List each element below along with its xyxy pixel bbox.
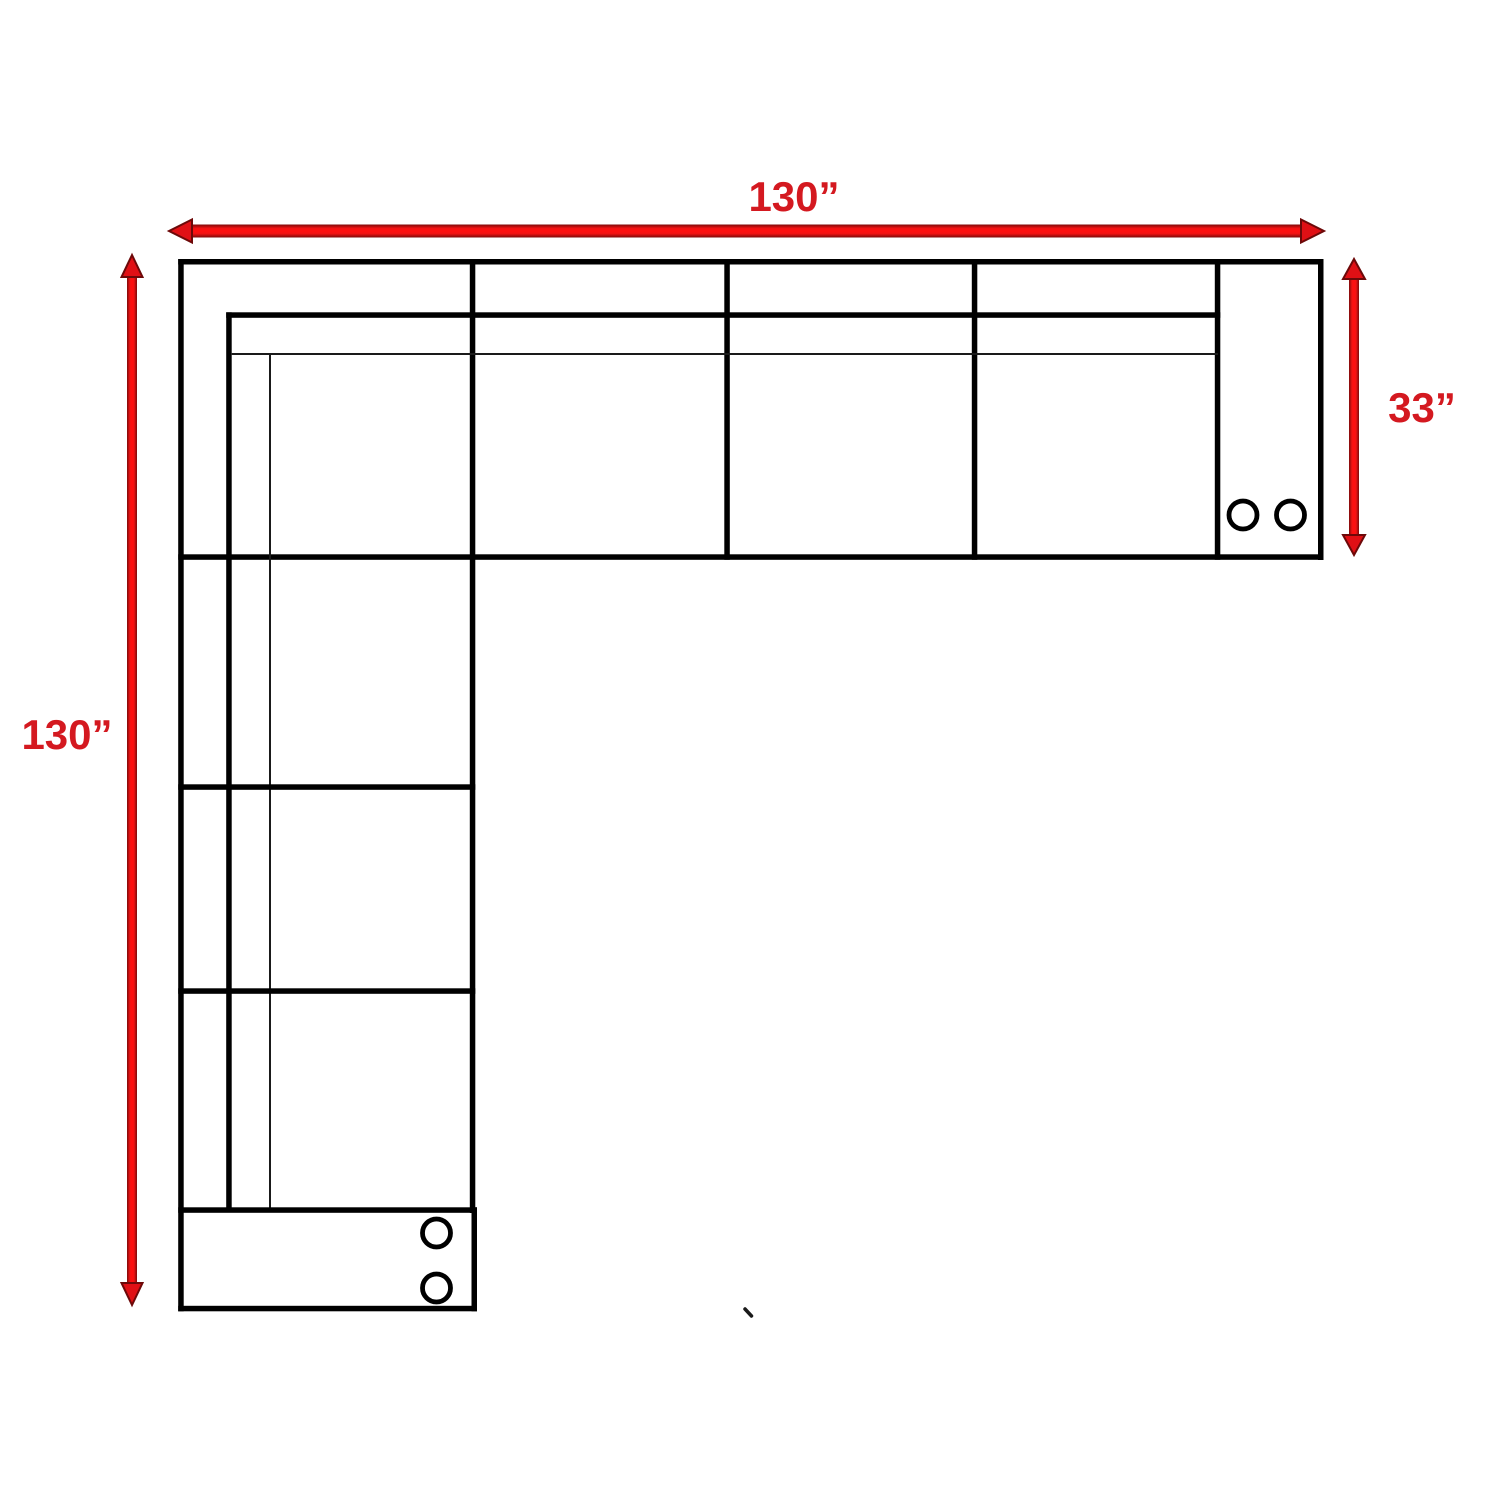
svg-text:130”: 130” <box>21 711 112 758</box>
svg-text:130”: 130” <box>748 173 839 220</box>
svg-text:33”: 33” <box>1388 384 1456 431</box>
